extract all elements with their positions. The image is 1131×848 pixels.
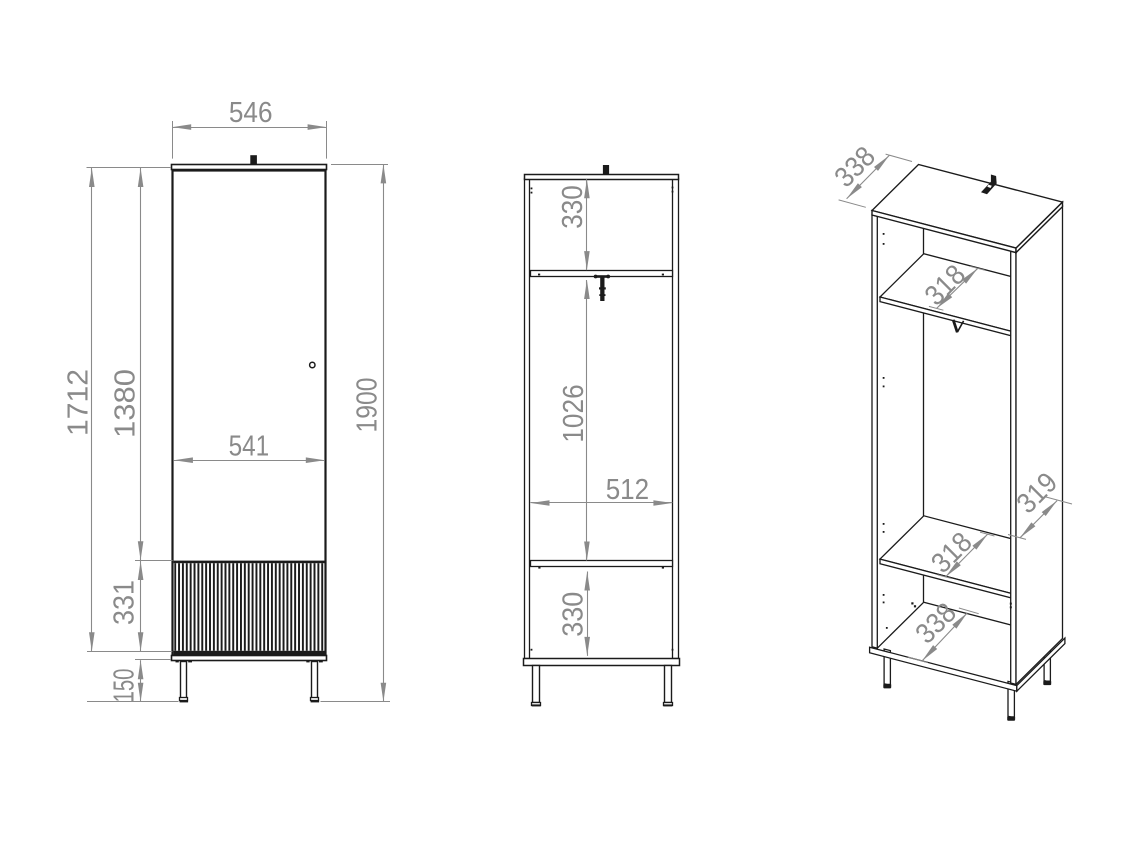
svg-text:150: 150 [109,669,141,703]
svg-text:330: 330 [557,185,589,229]
svg-text:330: 330 [558,592,590,637]
svg-text:546: 546 [229,97,273,129]
svg-text:1380: 1380 [109,369,141,438]
svg-text:1026: 1026 [558,384,590,442]
svg-text:512: 512 [606,474,649,506]
svg-text:541: 541 [229,430,270,462]
svg-text:331: 331 [109,580,141,625]
svg-text:1900: 1900 [352,378,384,433]
svg-text:1712: 1712 [62,369,94,436]
